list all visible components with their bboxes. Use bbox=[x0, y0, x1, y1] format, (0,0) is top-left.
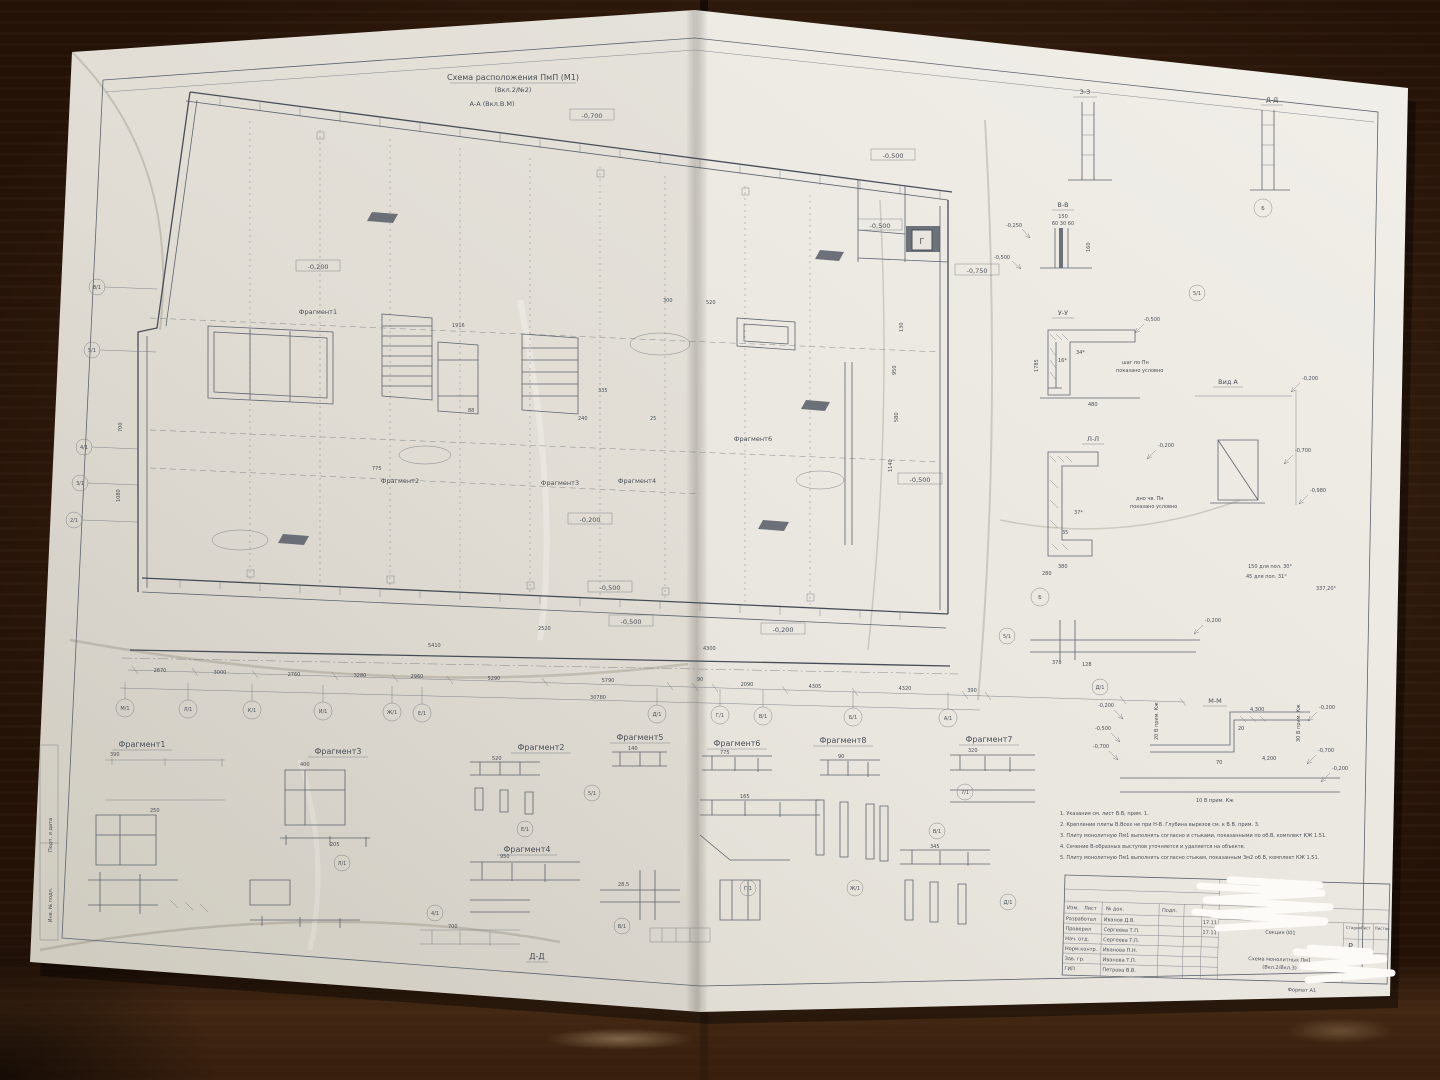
dim: 2520 bbox=[538, 626, 551, 632]
axis-bubble: Д/1 bbox=[653, 712, 662, 718]
elevation-mark: -0,500 bbox=[600, 584, 621, 592]
section-title: М-М bbox=[1208, 697, 1222, 705]
section-note: А-А (Вкл.В.М) bbox=[469, 100, 514, 108]
elevation-mark: -0,200 bbox=[1098, 703, 1114, 709]
micro-note: 150 для пол. 30° bbox=[1248, 564, 1292, 570]
axis-bubble: Б bbox=[1261, 206, 1265, 212]
stamp-cell: Зав. гр. bbox=[1065, 956, 1085, 963]
dim: 300 bbox=[663, 298, 673, 304]
dim: 775 bbox=[720, 750, 730, 756]
section-title: Л-Л bbox=[1087, 435, 1099, 443]
elevation-mark: -0,980 bbox=[1310, 488, 1326, 494]
elevation-mark: -0,700 bbox=[582, 112, 603, 120]
axis-bubble: Б/1 bbox=[849, 715, 857, 721]
stamp-cell: 17.11 bbox=[1202, 930, 1216, 936]
fragment-title: Фрагмент4 bbox=[503, 845, 550, 854]
dim: 4320 bbox=[899, 686, 912, 692]
micro-note: дно чв. Пн bbox=[1136, 496, 1163, 502]
note-line: 3. Плиту монолитную Пм1 выполнять соглас… bbox=[1060, 833, 1327, 839]
stamp-cell: ГИП bbox=[1064, 966, 1075, 972]
dim: 2760 bbox=[288, 672, 301, 678]
stamp-cell: Листов bbox=[1375, 926, 1391, 931]
dim: 950 bbox=[500, 854, 510, 860]
axis-bubble: 2/1 bbox=[70, 518, 78, 524]
total-dim: 30780 bbox=[590, 695, 606, 701]
stamp-cell: 17.11 bbox=[1203, 920, 1217, 926]
dim: 5410 bbox=[428, 643, 441, 649]
elevation-mark: -0,500 bbox=[621, 618, 642, 626]
dim: 1080 bbox=[116, 489, 122, 502]
stamp-cell: Стадия bbox=[1346, 925, 1362, 930]
section-title: У-У bbox=[1058, 309, 1068, 317]
axis-bubble: Г/1 bbox=[716, 713, 724, 719]
dim: 240 bbox=[578, 416, 588, 422]
axis-bubble: Ж/1 bbox=[850, 886, 860, 892]
view-title: Вид А bbox=[1218, 378, 1238, 386]
axis-bubble: Е/1 bbox=[418, 711, 426, 717]
format-label: Формат А1 bbox=[1288, 987, 1317, 994]
dim: 90 bbox=[838, 754, 844, 760]
axis-bubble: М/1 bbox=[120, 706, 129, 712]
fragment-title: Фрагмент2 bbox=[517, 743, 564, 752]
stamp-sheet-title: (Вкл.2/Вкл.3) bbox=[1262, 965, 1297, 972]
section-title: В-В bbox=[1057, 201, 1068, 209]
dim: 25 bbox=[650, 416, 656, 422]
stamp-object: Секция 001 bbox=[1265, 930, 1296, 937]
dim: 88 bbox=[468, 408, 474, 414]
dim: 60 30 60 bbox=[1052, 221, 1074, 227]
micro-note: 30 В прим. Кж bbox=[1296, 704, 1302, 742]
elevation-mark: -0,500 bbox=[870, 222, 891, 230]
fragment-title: Фрагмент6 bbox=[713, 739, 760, 748]
axis-bubble: Д/1 bbox=[1004, 900, 1013, 906]
stamp-cell: Сергеева Т.П. bbox=[1103, 927, 1140, 934]
detail-letter-g: Г bbox=[920, 237, 925, 246]
stamp-cell: Разработал bbox=[1066, 916, 1096, 923]
dim: 1140 bbox=[888, 459, 894, 472]
dim: 20 bbox=[1238, 726, 1244, 732]
axis-bubble: 5/1 bbox=[88, 348, 96, 354]
axis-bubble: Б bbox=[1038, 595, 1042, 601]
note-line: 4. Сечение В-образных выступов уточняетс… bbox=[1060, 844, 1246, 850]
dim: 700 bbox=[448, 924, 458, 930]
dim: 37* bbox=[1074, 510, 1083, 516]
dim: 390 bbox=[110, 752, 120, 758]
dim: 3000 bbox=[214, 670, 227, 676]
section-title: Д-Д bbox=[529, 952, 544, 961]
dim: 2870 bbox=[154, 668, 167, 674]
dim: 390 bbox=[967, 688, 977, 694]
dim: 5290 bbox=[488, 676, 501, 682]
micro-note: показано условно bbox=[1116, 368, 1163, 374]
dim: 520 bbox=[492, 756, 502, 762]
edge-label: Инв. № подл. bbox=[48, 887, 54, 922]
stamp-cell: Норм.контр. bbox=[1065, 946, 1098, 953]
dim: 205 bbox=[330, 842, 340, 848]
dim: 380 bbox=[1058, 564, 1068, 570]
note-line: 2. Крепление плиты В.Всех не при Н-В. Гл… bbox=[1060, 822, 1260, 828]
micro-note: 45 для пол. 31° bbox=[1246, 574, 1287, 580]
dim: 775 bbox=[372, 466, 382, 472]
section-title: Д-Д bbox=[1266, 96, 1279, 104]
stamp-cell: Сергеева Т.П. bbox=[1103, 937, 1140, 944]
elevation-mark: -0,500 bbox=[910, 476, 931, 484]
fragment-title: Фрагмент5 bbox=[616, 733, 663, 742]
fragment-label: Фрагмент3 bbox=[541, 479, 579, 487]
stamp-cell: № док. bbox=[1106, 906, 1124, 913]
dim: 5790 bbox=[602, 678, 615, 684]
dim: 700 bbox=[118, 422, 124, 432]
dim: 400 bbox=[300, 762, 310, 768]
paper-left-half-shade bbox=[30, 10, 700, 1012]
dim: 2960 bbox=[411, 674, 424, 680]
axis-bubble: 5/1 bbox=[1003, 634, 1011, 640]
axis-bubble: Д/1 bbox=[1096, 685, 1105, 691]
dim: 378 bbox=[1052, 660, 1062, 666]
stamp-cell: Иванов Д.В. bbox=[1104, 917, 1136, 924]
micro-note: показано условно bbox=[1130, 504, 1177, 510]
edge-label: Подп. и дата bbox=[48, 818, 54, 852]
micro-note: 20 В прим. Кж bbox=[1154, 702, 1160, 740]
elevation-mark: -0,700 bbox=[1295, 448, 1311, 454]
stamp-cell: Иванова П.Н. bbox=[1103, 947, 1138, 954]
elevation-mark: -0,200 bbox=[1158, 443, 1174, 449]
whiteout-scribble bbox=[1310, 948, 1370, 952]
axis-bubble: 4/1 bbox=[80, 445, 88, 451]
fragment-label: Фрагмент1 bbox=[299, 308, 337, 316]
subtitle-text: (Вкл.2/№2) bbox=[495, 86, 532, 94]
elevation-mark: -0,200 bbox=[773, 626, 794, 634]
elevation-mark: -0,200 bbox=[1205, 618, 1221, 624]
title-text: Схема расположения ПмП (М1) bbox=[447, 73, 579, 82]
axis-bubble: В/1 bbox=[759, 714, 767, 720]
elevation-mark: -0,700 bbox=[1318, 748, 1334, 754]
axis-bubble: Ж/1 bbox=[387, 710, 397, 716]
dim: 520 bbox=[706, 300, 716, 306]
dim: 250 bbox=[150, 808, 160, 814]
dim: 4305 bbox=[809, 684, 822, 690]
axis-bubble: 3/1 bbox=[76, 481, 84, 487]
dim: 280 bbox=[1042, 571, 1052, 577]
elevation-mark: -0,200 bbox=[1302, 376, 1318, 382]
dim: 335 bbox=[598, 388, 608, 394]
stamp-cell: Лист bbox=[1084, 906, 1097, 912]
dim: 130 bbox=[899, 322, 905, 332]
elevation-mark: -0,500 bbox=[1144, 317, 1160, 323]
fragment-title: Фрагмент8 bbox=[819, 736, 866, 745]
dim: 150 bbox=[1058, 214, 1068, 220]
stamp-cell: Петрова В.В. bbox=[1102, 967, 1136, 974]
dim: 4300 bbox=[703, 646, 716, 652]
elevation-mark: -0,200 bbox=[308, 263, 329, 271]
dim: 1916 bbox=[452, 323, 465, 329]
stamp-cell: Проверил bbox=[1065, 926, 1091, 933]
dim: 3280 bbox=[354, 673, 367, 679]
stamp-cell: Лист bbox=[1361, 925, 1372, 930]
elevation-mark: -0,200 bbox=[1319, 705, 1335, 711]
dim: 128 bbox=[1082, 662, 1092, 668]
dim: 480 bbox=[1088, 402, 1098, 408]
axis-bubble: Е/1 bbox=[521, 827, 529, 833]
elevation-mark: -0,500 bbox=[1095, 726, 1111, 732]
dim: 4,300 bbox=[1250, 707, 1264, 713]
elevation-mark: -0,250 bbox=[1006, 223, 1022, 229]
fragment-label: Фрагмент6 bbox=[734, 435, 772, 443]
dim: 140 bbox=[628, 746, 638, 752]
section-title: З-З bbox=[1080, 88, 1091, 96]
axis-bubble: Л/1 bbox=[338, 861, 347, 867]
dim: 2090 bbox=[741, 682, 754, 688]
dim: 345 bbox=[930, 844, 940, 850]
note-line: 5. Плиту монолитную Пм1 выполнять соглас… bbox=[1060, 855, 1320, 861]
axis-bubble: В/1 bbox=[933, 829, 941, 835]
stamp-cell: Подп. bbox=[1162, 908, 1178, 914]
dim: 160 bbox=[1086, 242, 1092, 252]
stamp-cell: Изм. bbox=[1067, 905, 1079, 911]
axis-bubble: 5/1 bbox=[588, 791, 596, 797]
axis-bubble: И/1 bbox=[319, 709, 328, 715]
axis-bubble: 7/1 bbox=[961, 790, 969, 796]
dim: 70 bbox=[1216, 760, 1222, 766]
micro-note: 10 В прим. Кж bbox=[1196, 798, 1234, 804]
dim: 35 bbox=[1062, 530, 1068, 536]
dim: 16* bbox=[1058, 358, 1067, 364]
note-line: 1. Указания см. лист В.В, прим. 1. bbox=[1060, 811, 1149, 817]
axis-bubble: 5/1 bbox=[1193, 291, 1201, 297]
axis-bubble: В/1 bbox=[618, 924, 626, 930]
axis-bubble: Л/1 bbox=[184, 707, 193, 713]
dim: 580 bbox=[894, 412, 900, 422]
elevation-mark: -0,200 bbox=[1332, 766, 1348, 772]
fragment-title: Фрагмент3 bbox=[314, 747, 361, 756]
micro-note: 337,20° bbox=[1316, 586, 1336, 592]
dim: 28,5 bbox=[618, 882, 629, 888]
fragment-title: Фрагмент1 bbox=[118, 740, 165, 749]
dim: 4,200 bbox=[1262, 756, 1276, 762]
elevation-mark: -0,200 bbox=[580, 516, 601, 524]
dim: 950 bbox=[892, 365, 898, 375]
dim: 1785 bbox=[1034, 359, 1040, 372]
axis-bubble: А/1 bbox=[944, 716, 952, 722]
stamp-cell: Нач. отд. bbox=[1065, 936, 1090, 943]
elevation-mark: -0,500 bbox=[994, 255, 1010, 261]
elevation-mark: -0,750 bbox=[967, 267, 988, 275]
fragment-title: Фрагмент7 bbox=[965, 735, 1012, 744]
dim: 90 bbox=[697, 677, 703, 683]
dim: 34* bbox=[1076, 350, 1085, 356]
axis-bubble: К/1 bbox=[248, 708, 256, 714]
fragment-label: Фрагмент2 bbox=[381, 477, 419, 485]
elevation-mark: -0,700 bbox=[1093, 744, 1109, 750]
dim: 165 bbox=[740, 794, 750, 800]
stamp-cell: Иванова Т.П. bbox=[1103, 957, 1137, 964]
axis-bubble: 8/1 bbox=[93, 285, 101, 291]
axis-bubble: Г/1 bbox=[744, 886, 752, 892]
dim: 320 bbox=[968, 748, 978, 754]
center-fold-crease bbox=[686, 10, 708, 1012]
fragment-label: Фрагмент4 bbox=[618, 477, 656, 485]
photo-scene: Подп. и дата Инв. № подл. Схема располож… bbox=[0, 0, 1440, 1080]
micro-note: шаг по Пн bbox=[1122, 360, 1149, 366]
axis-bubble: 4/1 bbox=[431, 911, 439, 917]
blueprint-photo: Подп. и дата Инв. № подл. Схема располож… bbox=[0, 0, 1440, 1080]
elevation-mark: -0,500 bbox=[883, 152, 904, 160]
